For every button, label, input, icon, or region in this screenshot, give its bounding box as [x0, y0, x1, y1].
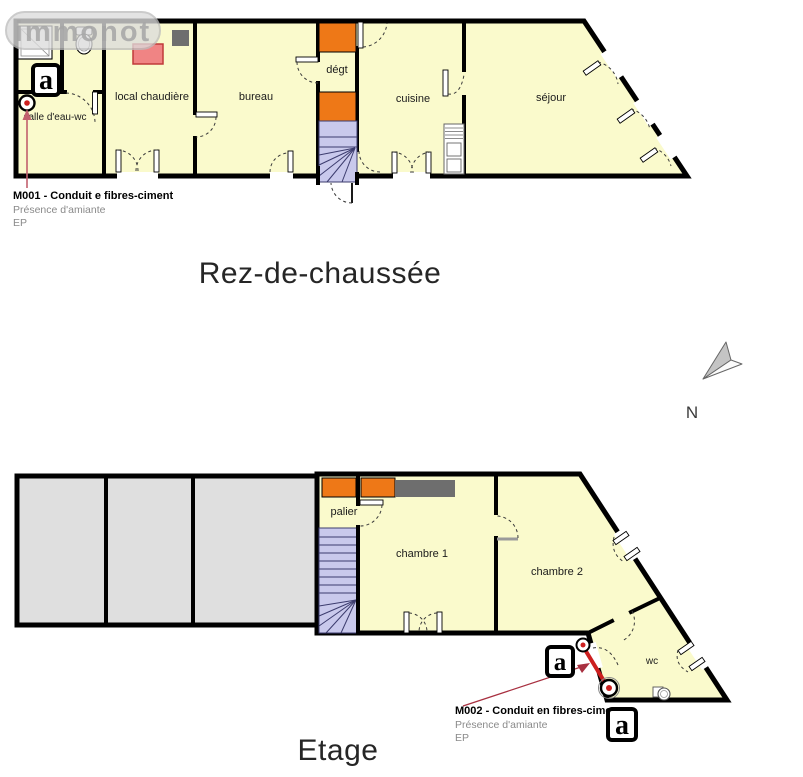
chimney-conduit: [172, 30, 189, 46]
annotation-m002: M002 - Conduit en fibres-cimen Présence …: [455, 663, 618, 744]
conduit-orange-bottom: [319, 92, 356, 121]
annotation-m002-title: M002 - Conduit en fibres-cimen: [455, 705, 618, 717]
floor-plan-drawing: salle d'eau-wc local chaudière bureau dé…: [0, 0, 803, 777]
asbestos-letter-uf-1: a: [554, 649, 567, 676]
conduit-orange-left: [322, 478, 356, 497]
room-label-wc: wc: [645, 656, 658, 667]
ground-floor-plan: salle d'eau-wc local chaudière bureau dé…: [13, 21, 687, 290]
watermark-text: immonot: [15, 16, 151, 48]
attic-block: [17, 476, 317, 625]
room-label-bathroom: salle d'eau-wc: [23, 112, 86, 123]
ground-floor-staircase: [318, 121, 357, 183]
annotation-m002-subtitle: Présence d'amiante: [455, 719, 548, 731]
ground-floor-title: Rez-de-chaussée: [199, 257, 442, 290]
upper-floor-staircase: [319, 528, 358, 633]
annotation-m001-subtitle: Présence d'amiante: [13, 204, 106, 216]
conduit-gray: [395, 480, 455, 497]
room-label-bedroom1: chambre 1: [396, 548, 448, 560]
asbestos-letter-gf: a: [39, 65, 53, 96]
room-label-hallway: dégt: [326, 64, 347, 76]
floor-plan-page: salle d'eau-wc local chaudière bureau dé…: [0, 0, 803, 777]
room-label-boiler-room: local chaudière: [115, 91, 189, 103]
asbestos-letter-uf-2: a: [615, 710, 629, 741]
annotation-m001: M001 - Conduit e fibres-ciment Présence …: [13, 190, 173, 229]
room-label-living-room: séjour: [536, 92, 566, 104]
room-label-office: bureau: [239, 91, 273, 103]
room-label-bedroom2: chambre 2: [531, 566, 583, 578]
upper-floor-plan: palier chambre 1 chambre 2 wc M002 - Con…: [17, 474, 727, 767]
upper-floor-title: Etage: [298, 734, 379, 767]
north-label: N: [686, 403, 698, 422]
watermark: immonot: [6, 12, 160, 49]
annotation-arrow-uf: [577, 663, 590, 673]
kitchen-unit-icon: [444, 124, 464, 174]
upper-floor-outline: [317, 474, 727, 700]
annotation-m002-code: EP: [455, 732, 469, 744]
conduit-orange-right: [361, 478, 395, 497]
room-label-kitchen: cuisine: [396, 93, 430, 105]
north-compass-icon: N: [686, 342, 742, 422]
room-label-landing: palier: [331, 506, 358, 518]
annotation-m001-title: M001 - Conduit e fibres-ciment: [13, 190, 173, 202]
conduit-orange-top: [319, 23, 356, 52]
annotation-m001-code: EP: [13, 217, 27, 229]
